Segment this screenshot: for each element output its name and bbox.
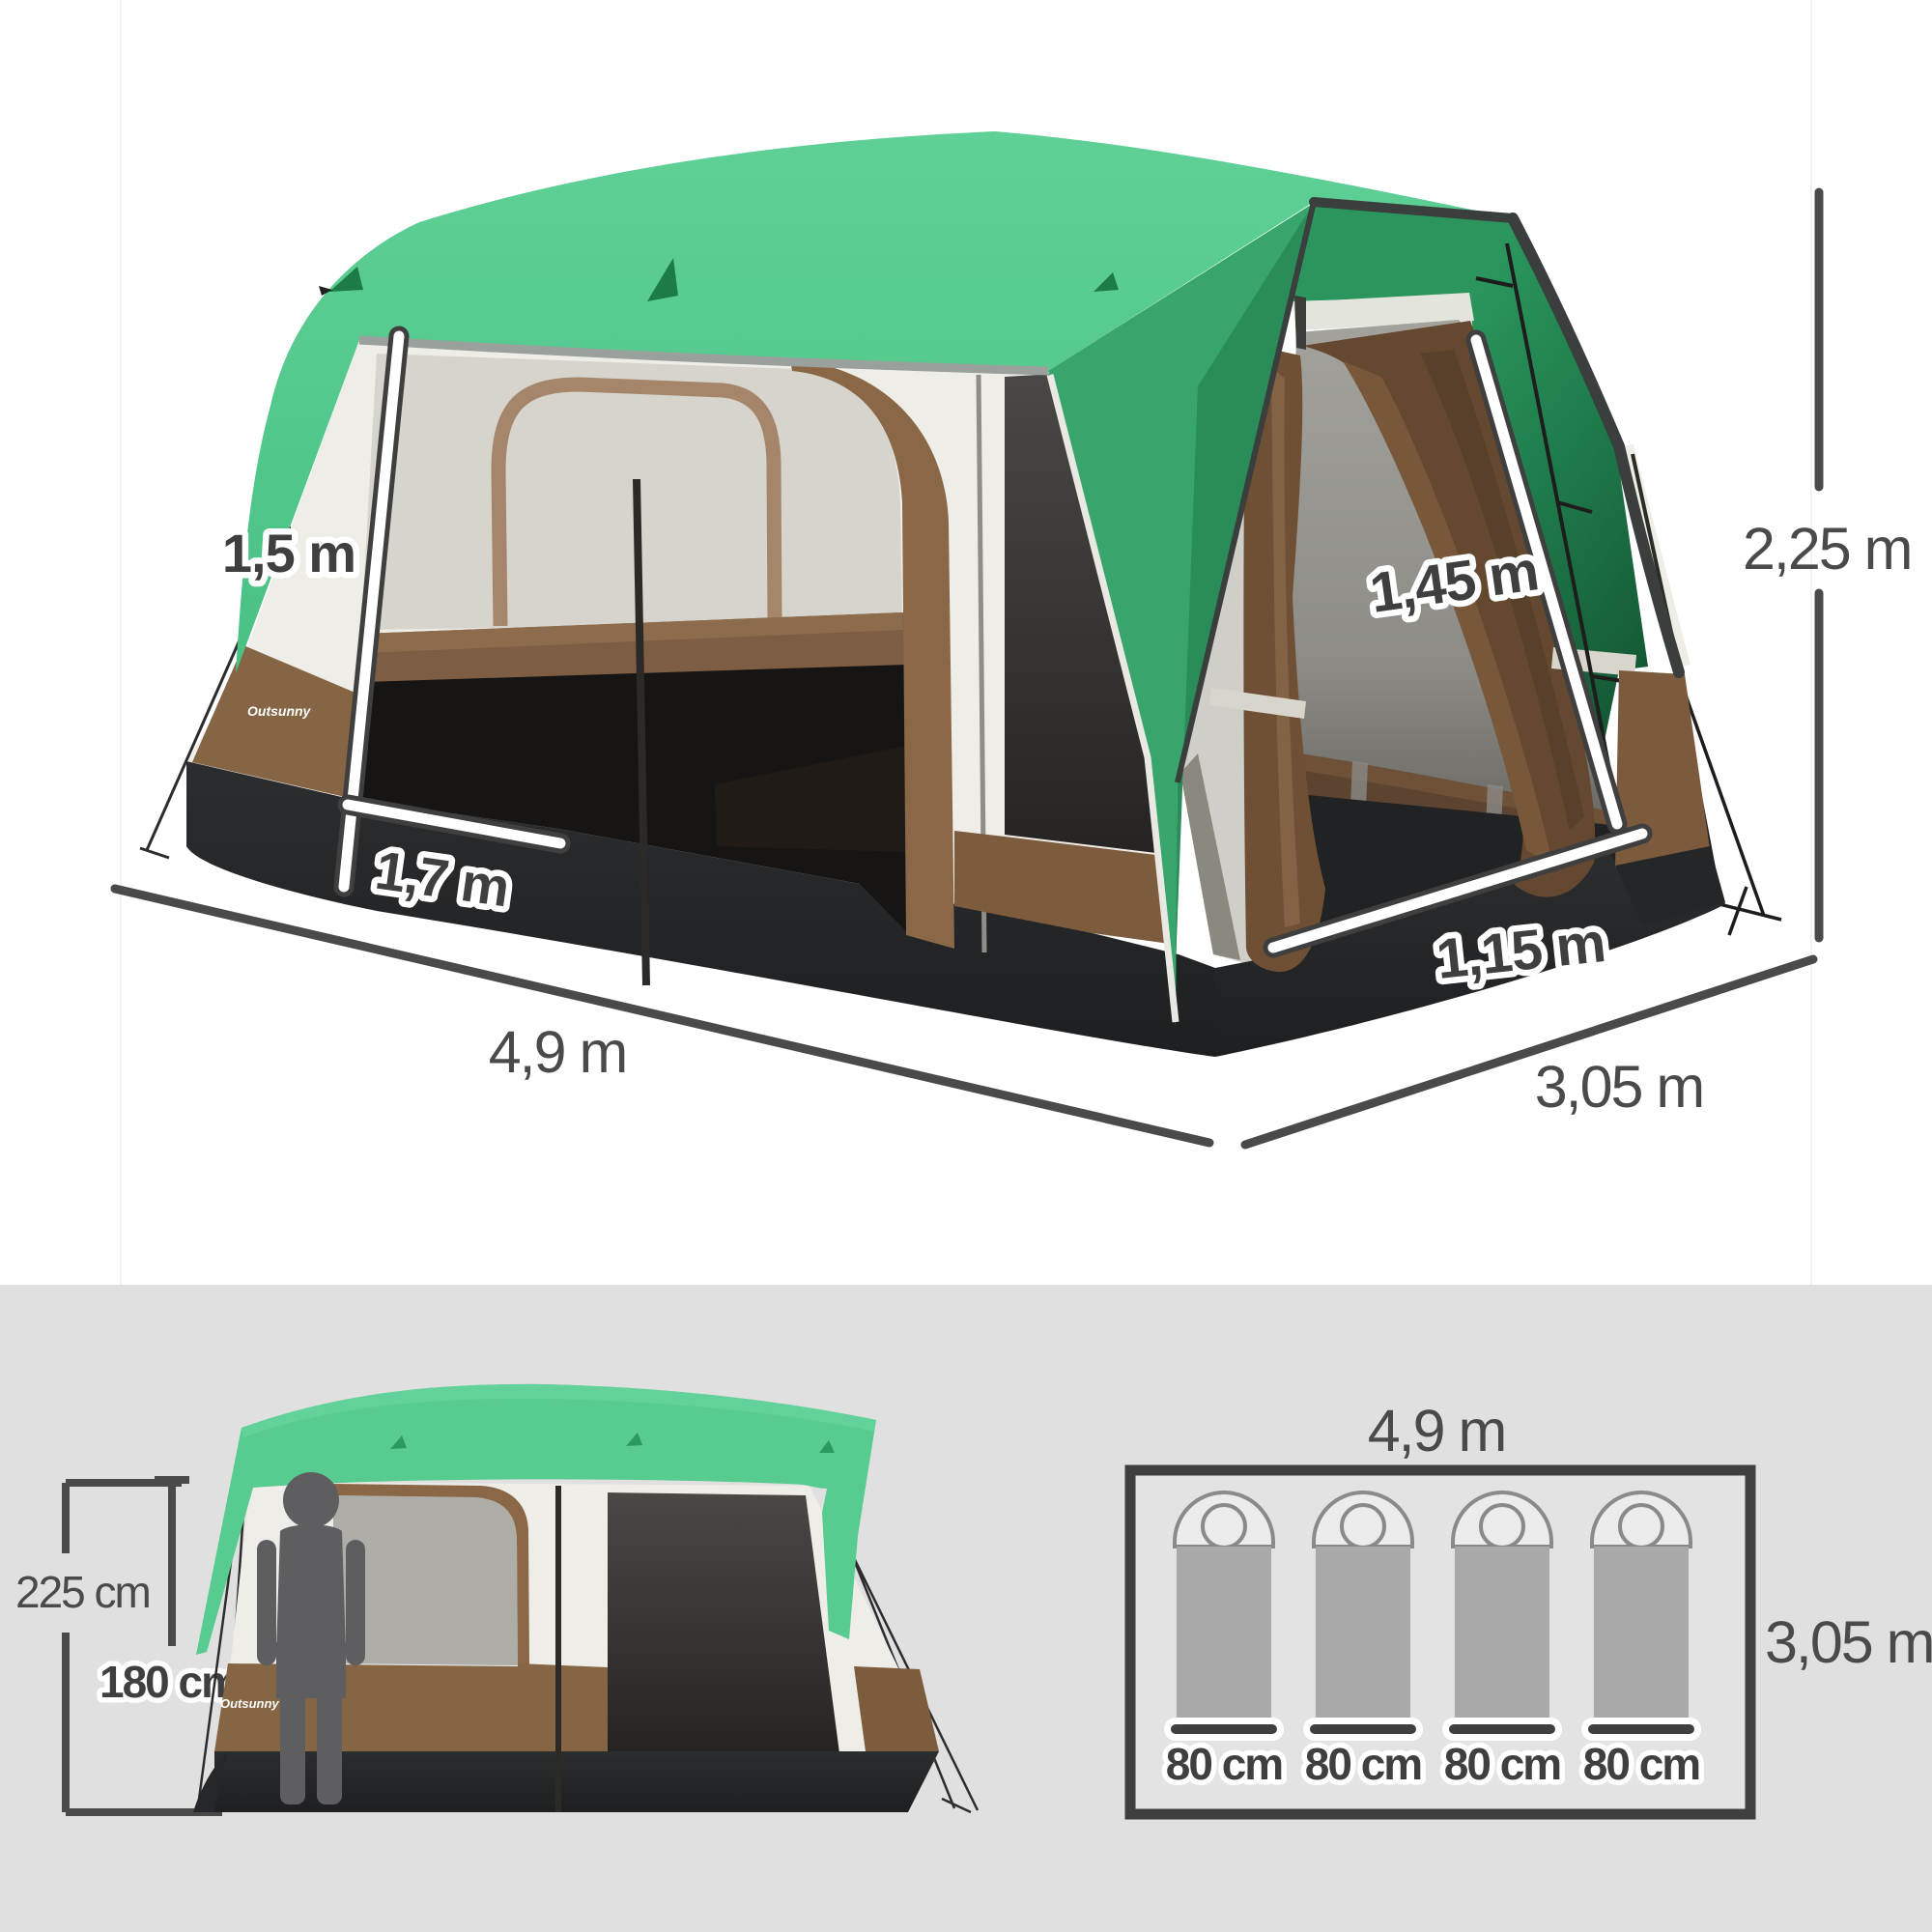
svg-text:3,05 m: 3,05 m — [1535, 1054, 1704, 1120]
svg-text:4,9 m: 4,9 m — [1368, 1398, 1506, 1463]
svg-text:3,05 m: 3,05 m — [1765, 1609, 1932, 1675]
svg-text:225 cm: 225 cm — [15, 1567, 150, 1617]
svg-text:80 cm: 80 cm — [1166, 1739, 1283, 1789]
svg-text:1,5 m: 1,5 m — [222, 523, 355, 583]
svg-text:Outsunny: Outsunny — [247, 703, 312, 719]
svg-text:Outsunny: Outsunny — [220, 1696, 279, 1711]
svg-text:2,25 m: 2,25 m — [1743, 516, 1912, 582]
svg-text:4,9 m: 4,9 m — [489, 1019, 627, 1085]
